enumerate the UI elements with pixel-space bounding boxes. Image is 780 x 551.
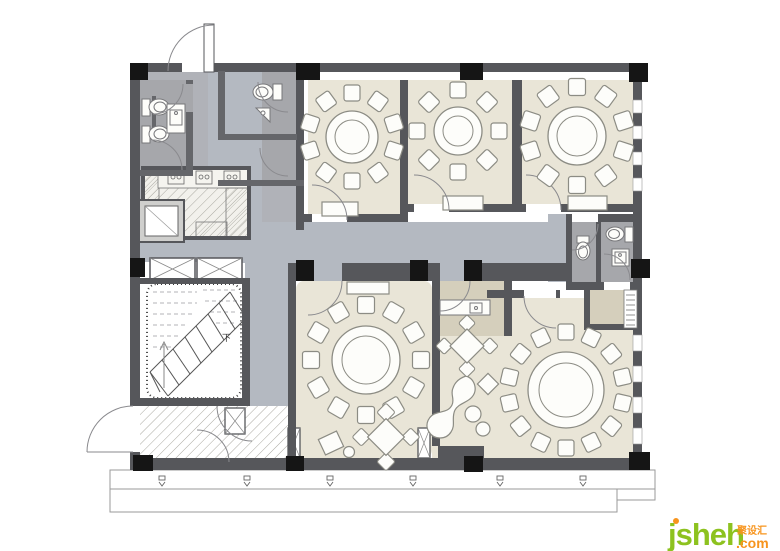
chair [613, 393, 632, 412]
watermark-dot-icon [673, 518, 679, 524]
chair [450, 82, 466, 98]
table-top [326, 111, 378, 163]
table-top [434, 107, 482, 155]
downlight-symbol [410, 476, 416, 486]
chair [558, 324, 574, 340]
exterior-door-swing-arc [87, 406, 133, 452]
chair [558, 440, 574, 456]
chair [491, 123, 507, 139]
floor-plan-svg: 下 [0, 0, 780, 551]
main-corridor-floor [245, 222, 572, 263]
chair [613, 368, 632, 387]
chair [303, 352, 320, 369]
chair [569, 79, 586, 96]
sideboard [347, 282, 389, 294]
side-table [465, 406, 481, 422]
floor-plan-image: 下 [0, 0, 780, 551]
watermark-suffix: .com [736, 535, 769, 551]
terrace-and-steps [110, 470, 655, 512]
chair [358, 297, 375, 314]
dumbwaiter [138, 200, 184, 242]
sideboard [568, 196, 607, 210]
kitchen [138, 168, 249, 242]
downlight-symbol [244, 476, 250, 486]
chair [413, 352, 430, 369]
toilet-icon [606, 227, 633, 242]
watermark-logo: jsheh 聚设汇 .com [667, 517, 769, 551]
chair [500, 393, 519, 412]
sink-counter-icon [167, 104, 185, 133]
downlight-symbol [580, 476, 586, 486]
sideboard [322, 202, 358, 216]
chair [344, 85, 360, 101]
service-counter [440, 300, 490, 315]
toilet-icon [253, 84, 282, 100]
chair [344, 173, 360, 189]
chair [358, 407, 375, 424]
pantry-strip-floor [590, 290, 624, 328]
downlight-symbol [497, 476, 503, 486]
shelving-unit [624, 290, 637, 328]
stair-down-label: 下 [222, 333, 231, 343]
round-dining-table [409, 82, 507, 180]
side-table [344, 447, 355, 458]
chair [500, 368, 519, 387]
chair [450, 164, 466, 180]
side-table [476, 422, 490, 436]
downlight-symbol [159, 476, 165, 486]
entrance-door-leaf [204, 24, 214, 72]
chair [409, 123, 425, 139]
sink-icon [612, 249, 629, 266]
chair [569, 177, 586, 194]
downlight-symbol [327, 476, 333, 486]
